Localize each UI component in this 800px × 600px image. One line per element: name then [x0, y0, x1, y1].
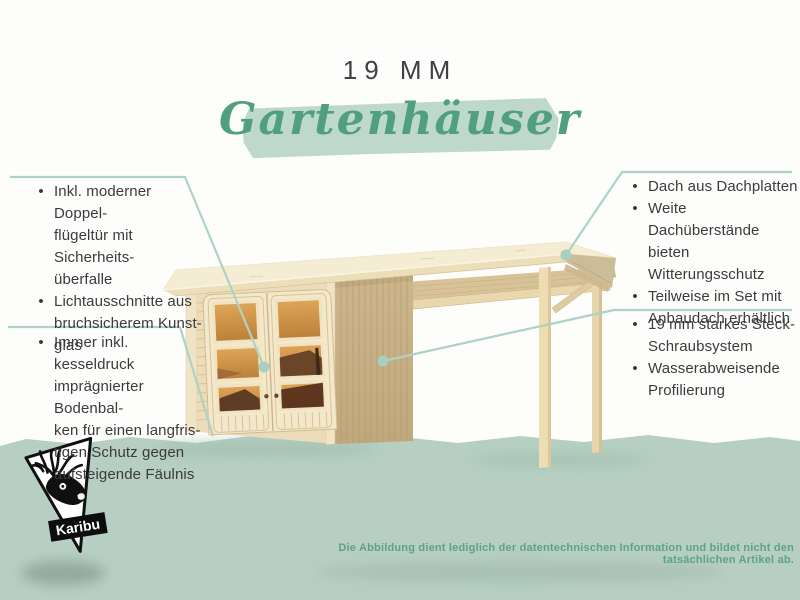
- callout-text: Immer inkl. kesseldruck imprägnierter Bo…: [54, 332, 204, 486]
- disclaimer-text: Die Abbildung dient lediglich der datent…: [330, 542, 794, 566]
- page-title: Gartenhäuser: [0, 94, 800, 145]
- logo-shadow: [21, 561, 105, 585]
- bullet-icon: •: [28, 332, 54, 486]
- bullet-icon: •: [622, 198, 648, 286]
- side-wall: [335, 275, 413, 444]
- callout-bottom-left: • Immer inkl. kesseldruck imprägnierter …: [28, 332, 204, 486]
- callout-text: Dach aus Dachplatten: [648, 176, 798, 198]
- callout-bottom-right: • 19 mm starkes Steck- Schraubsystem • W…: [622, 314, 798, 402]
- bullet-icon: •: [28, 181, 54, 291]
- post-base-shadow: [470, 453, 650, 467]
- callout-dot-roof: [561, 250, 572, 261]
- double-door: [203, 289, 337, 435]
- bullet-icon: •: [622, 176, 648, 198]
- callout-item: • 19 mm starkes Steck- Schraubsystem: [622, 314, 798, 358]
- infographic-page: Karibu 19 MM Gartenhäuser • Inkl. modern…: [0, 0, 800, 600]
- header-thickness: 19 MM: [0, 55, 800, 86]
- callout-text: Weite Dachüberstände bieten Witterungssc…: [648, 198, 798, 286]
- callout-item: • Weite Dachüberstände bieten Witterungs…: [622, 198, 798, 286]
- callout-text: 19 mm starkes Steck- Schraubsystem: [648, 314, 798, 358]
- callout-dot-wall: [378, 356, 389, 367]
- callout-top-right: • Dach aus Dachplatten • Weite Dachübers…: [622, 176, 798, 330]
- callout-item: • Inkl. moderner Doppel- flügeltür mit S…: [28, 181, 204, 291]
- callout-text: Wasserabweisende Profilierung: [648, 358, 798, 402]
- bullet-icon: •: [622, 358, 648, 402]
- bullet-icon: •: [622, 314, 648, 358]
- callout-dot-door: [259, 362, 270, 373]
- callout-item: • Immer inkl. kesseldruck imprägnierter …: [28, 332, 204, 486]
- callout-text: Inkl. moderner Doppel- flügeltür mit Sic…: [54, 181, 204, 291]
- callout-item: • Dach aus Dachplatten: [622, 176, 798, 198]
- callout-top-left: • Inkl. moderner Doppel- flügeltür mit S…: [28, 181, 204, 357]
- callout-item: • Wasserabweisende Profilierung: [622, 358, 798, 402]
